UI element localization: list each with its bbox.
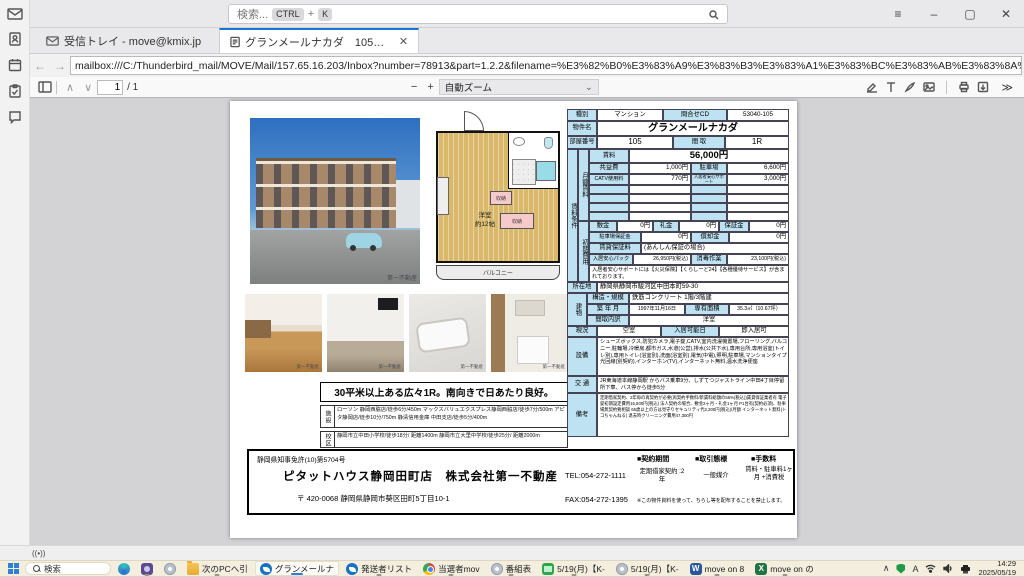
taskbar-item-excel[interactable]: Xmove on の [751,561,817,576]
thunderbird-icon [346,563,358,575]
kbd-ctrl: CTRL [272,8,304,21]
taskbar-item-media-3[interactable]: 5/19(月)【K- [612,561,683,576]
tray-chevron-icon[interactable]: ∧ [883,563,890,574]
name-label: 物件名 [567,121,597,136]
support-value: 3,000円 [727,174,789,185]
access-label: 交 通 [567,376,597,393]
tab-pdf-label: グランメールナカダ 105号室.p [245,34,392,50]
rent-label: 賃料 [589,149,629,163]
page-up-icon[interactable]: ∧ [61,81,79,94]
photo-washroom: 第一不動産 [491,294,568,372]
school-row: 校区 静岡市立中田小学校/徒歩18分/ 距離1400m 静岡市立大里中学校/徒歩… [320,431,568,448]
parking-value: 6,600円 [727,163,789,174]
chat-icon[interactable] [8,110,22,124]
property-name: グランメールナカダ [597,121,789,136]
windows-logo-icon [8,563,19,574]
chrome-icon [423,563,435,575]
tab-inbox[interactable]: 受信トレイ - move@kmix.jp [36,28,211,53]
facility-row: 施設 ローソン 静岡西脇店/徒歩6分/450m マックスバリュエクスプレス静岡西… [320,405,568,428]
deposit-value: 0円 [617,221,653,232]
bathtub [536,161,556,181]
quick-search-bar[interactable]: 検索... CTRL + K [228,4,728,24]
back-icon[interactable]: ← [30,59,50,73]
anshin-pack-value: 26,950円(税込) [633,254,691,265]
company-name: ピタットハウス静岡田町店 株式会社第一不動産 [283,468,558,484]
fee-label: 共益費 [589,163,629,174]
company-fax: FAX:054-272-1395 [565,495,628,504]
support-label: 入居者安心サポート [691,174,727,185]
storage-1: 収納 [490,191,512,205]
floor-plan: 収納 収納 洋室 約12帖 バルコニー [426,109,572,291]
tab-inbox-label: 受信トレイ - move@kmix.jp [64,33,201,49]
photo-bathtub: 第一不動産 [409,294,486,372]
maximize-button[interactable]: ▢ [952,0,988,28]
forward-icon[interactable]: → [50,59,70,73]
terms-label: 賃料条件 [567,149,578,282]
building-photo: 第一不動産 [250,118,420,284]
taskbar-item-media[interactable] [160,561,180,576]
equipment-value: シューズボックス,防犯カメラ,電子錠,CATV,室内洗濯機置場,フローリング,バ… [597,337,789,376]
taskbar-item-thunderbird-active[interactable]: グランメールナ [255,561,339,576]
photo-kitchen: 第一不動産 [327,294,404,372]
taskbar-item-explorer[interactable]: 次のPCへ引 [183,561,252,576]
amortization-value: 0円 [729,232,789,243]
text-annotation-icon[interactable] [885,81,897,93]
kitchen-counter [437,177,449,215]
anshin-pack-label: 入居安心パック [589,254,633,265]
taskbar-item-thunderbird-2[interactable]: 発送者リスト [342,561,416,576]
photo-living: 第一不動産 [245,294,322,372]
kbd-k: K [318,8,332,21]
building-label: 建物 [567,293,587,326]
spaces-toolbar [0,0,30,545]
speaker-icon[interactable] [943,564,953,573]
guaranty-label: 保証金 [719,221,749,232]
property-table: 種別 マンション 問合せCD 53040-105 物件名 グランメールナカダ 部… [567,109,789,437]
tab-pdf-active[interactable]: グランメールナカダ 105号室.p ✕ [219,28,419,53]
remarks-value: 定期借家契約、2年毎の再契約が必要(再契約手数料/新賃料総額の55%(税込))賃… [597,393,789,437]
taskbar-item-camera[interactable] [137,561,157,576]
access-value: JR東海道本線静岡駅 からバス乗車9分、しずてつジャストライン中田4丁目停留所下… [597,376,789,393]
zoom-select-value: 自動ズーム [445,80,492,94]
built-value: 1997年11月16日 [629,304,685,315]
status-value: 空室 [597,326,661,337]
close-button[interactable]: ✕ [988,0,1024,28]
company-address: 〒 420-0068 静岡県静岡市葵区田町5丁目10-1 [297,493,450,504]
rent-guarantee-value: (あんしん保証の場合) [641,243,789,254]
taskbar-clock[interactable]: 14:29 2025/05/19 [978,560,1016,577]
minimize-button[interactable]: – [916,0,952,28]
movein-value: 即入居可 [719,326,789,337]
code-value: 53040-105 [727,109,789,121]
address-book-icon[interactable] [8,32,22,46]
taskbar: 検索 次のPCへ引 グランメールナ 発送者リスト 当選者mov 番組表 5/19… [0,560,1024,576]
neighbor-building [396,180,420,228]
toilet [544,137,553,149]
layout-detail-value: 洋室 [629,315,789,326]
apartment-building [256,158,396,228]
pdf-toolbar: ∧ ∨ / 1 − + 自動ズーム ⌄ ≫ [30,77,1024,98]
tab-close-icon[interactable]: ✕ [399,35,408,48]
url-bar: ← → mailbox:///C:/Thunderbird_mail/MOVE/… [30,54,1024,77]
rent-value: 56,000円 [629,149,789,163]
entry-door [464,111,484,131]
highlighter-icon[interactable] [866,81,878,93]
page-down-icon[interactable]: ∨ [79,81,97,94]
toolbar-more-icon[interactable]: ≫ [996,81,1018,94]
school-label: 校区 [321,432,335,447]
folder-icon [187,563,199,575]
layout-detail-label: 間取内訳 [587,315,629,326]
tv-app-icon [542,563,554,575]
monthly-label: 月額賃料 [578,149,589,221]
fee-header: ■手数料 [751,454,776,464]
wifi-icon[interactable] [925,564,936,573]
deposit-label: 敷金 [589,221,617,232]
page-number-input[interactable] [97,80,123,95]
search-icon [33,565,40,572]
word-icon: W [690,563,702,575]
media-player-icon [164,563,176,575]
search-icon [709,10,719,20]
contract-period-value: 定期借家契約 :2年 [637,468,687,484]
remarks-label: 備考 [567,393,597,437]
movein-label: 入居可能日 [661,326,719,337]
balcony-label: バルコニー [436,265,560,280]
broadcast-icon[interactable]: ((•)) [32,549,45,558]
disinfect-label: 消毒作業 [691,254,727,265]
room-name: 洋室 [450,211,520,220]
printer-tray-icon[interactable] [960,564,971,574]
layout-value: 1R [725,136,789,149]
taskbar-search-label: 検索 [44,563,61,575]
print-icon[interactable] [958,81,970,93]
parking-label: 駐車場 [691,163,727,174]
status-bar: ((•)) [0,545,1024,560]
taskbar-item-tv[interactable]: 5/19(月)【K- [538,561,609,576]
school-text: 静岡市立中田小学校/徒歩18分/ 距離1400m 静岡市立大里中学校/徒歩25分… [335,432,567,447]
deal-type-header: ■取引態様 [695,454,727,464]
taskbar-item-media-2[interactable]: 番組表 [487,561,536,576]
url-input[interactable]: mailbox:///C:/Thunderbird_mail/MOVE/Mail… [70,56,1022,75]
sink [513,137,525,146]
initial-note: 入居者安心サポートには【火災保険】【くらしーど24】【各種優待サービス】が含まれ… [589,265,789,282]
mail-tab-icon [46,36,59,46]
document-tab-icon [230,36,240,48]
facility-text: ローソン 静岡西脇店/徒歩6分/450m マックスバリュエクスプレス静岡西脇店/… [335,406,567,427]
catv-label: CATV使用料 [589,174,629,185]
zoom-in-icon[interactable]: + [422,81,438,93]
keymoney-value: 0円 [679,221,719,232]
system-tray: ∧ A 14:29 2025/05/19 [883,560,1020,577]
initial-label: 初期費用 [578,221,589,282]
tab-bar: 受信トレイ - move@kmix.jp グランメールナカダ 105号室.p ✕ [30,28,1024,54]
fee-value: 賃料・駐車料1ヶ月 +消費税 [743,466,795,482]
ime-indicator[interactable]: A [912,564,918,574]
status-label: 現況 [567,326,597,337]
pdf-viewport[interactable]: 第一不動産 収納 収納 洋室 約12帖 バルコニー [30,98,1024,545]
zoom-out-icon[interactable]: − [406,81,422,93]
draw-icon[interactable] [904,81,916,93]
floor-plan-body: 収納 収納 洋室 約12帖 [436,131,560,263]
type-value: マンション [597,109,663,121]
amortization-label: 償却金 [691,232,729,243]
room-size: 約12帖 [450,220,520,229]
camera-icon [141,563,153,575]
mail-icon[interactable] [7,8,23,20]
room-number: 105 [597,136,673,149]
built-label: 築 年 月 [587,304,629,315]
fee-value: 1,000円 [629,163,691,174]
structure-value: 鉄筋コンクリート 1階/3階建 [629,293,789,304]
parking-deposit-value: 0円 [641,232,691,243]
type-label: 種別 [567,109,597,121]
taskbar-item-word[interactable]: Wmove on 8 [686,561,749,576]
excel-icon: X [755,563,767,575]
layout-label: 間 取 [673,136,725,149]
washroom [512,159,536,185]
facility-label: 施設 [321,406,335,427]
taskbar-search[interactable]: 検索 [25,562,111,575]
kbd-plus: + [308,8,314,20]
guaranty-value: 0円 [749,221,789,232]
room-number-label: 部屋番号 [567,136,597,149]
search-placeholder: 検索... [237,6,268,22]
titlebar: 検索... CTRL + K ≡ – ▢ ✕ [0,0,1024,28]
window-controls: ≡ – ▢ ✕ [880,0,1024,28]
code-label: 問合せCD [663,109,727,121]
disinfect-value: 23,100円(税込) [727,254,789,265]
antivirus-shield-icon[interactable] [896,564,905,574]
equipment-label: 設備 [567,337,597,376]
area-label: 専有面積 [685,304,729,315]
zoom-select[interactable]: 自動ズーム ⌄ [439,79,599,95]
room-label: 洋室 約12帖 [450,211,520,229]
deal-type-value: 一般媒介 [693,472,739,480]
location-label: 所在地 [567,282,597,293]
keymoney-label: 礼金 [653,221,679,232]
page-total: / 1 [127,82,138,93]
company-tel: TEL:054-272-1111 [565,471,626,480]
start-button[interactable] [4,562,22,576]
footer-note: ※この物件資料を使って、ちらし等を配布することを禁止します。 [637,497,793,504]
parked-car [346,233,382,248]
media-player-icon [616,563,628,575]
taskbar-item-edge[interactable] [114,561,134,576]
calendar-icon[interactable] [8,58,22,72]
pdf-page: 第一不動産 収納 収納 洋室 約12帖 バルコニー [230,101,797,538]
tasks-icon[interactable] [8,84,22,98]
image-annotation-icon[interactable] [923,81,935,93]
company-footer: 静岡県知事免許(10)第5704号 ピタットハウス静岡田町店 株式会社第一不動産… [247,449,795,515]
area-value: 35.3㎡（10.67坪） [729,304,789,315]
taskbar-item-chrome[interactable]: 当選者mov [419,561,484,576]
headline: 30平米以上ある広々1R。南向きで日あたり良好。 [320,382,568,402]
parking-deposit-label: 駐車場保証金 [589,232,641,243]
license-number: 静岡県知事免許(10)第5704号 [257,454,345,464]
sidebar-toggle-icon[interactable] [38,81,52,93]
edge-icon [118,563,130,575]
catv-value: 770円 [629,174,691,185]
app-menu-button[interactable]: ≡ [880,0,916,28]
rent-guarantee-label: 賃貸保証料 [589,243,641,254]
download-icon[interactable] [977,81,989,93]
media-player-icon [491,563,503,575]
location-value: 静岡県静岡市駿河区中田本町59-30 [597,282,789,293]
structure-label: 構造・規模 [587,293,629,304]
contract-period-header: ■契約期間 [637,454,669,464]
chevron-down-icon: ⌄ [585,82,593,93]
thunderbird-icon [260,563,272,575]
photo-watermark: 第一不動産 [387,273,417,282]
